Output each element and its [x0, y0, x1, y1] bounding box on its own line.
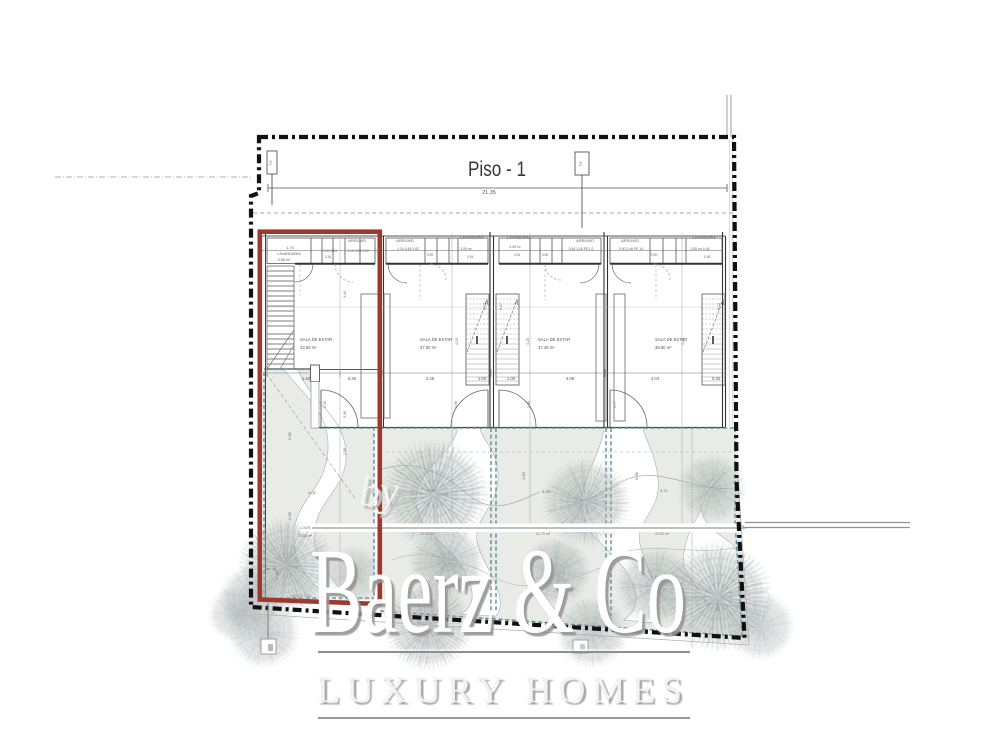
svg-text:0.38: 0.38 — [634, 471, 639, 480]
svg-text:SALA DE ESTAR: SALA DE ESTAR — [300, 337, 332, 342]
svg-text:2.40: 2.40 — [323, 401, 327, 408]
svg-text:1.00: 1.00 — [507, 376, 516, 381]
svg-text:6.12: 6.12 — [717, 303, 721, 310]
svg-text:SALA DE ESTAR: SALA DE ESTAR — [538, 337, 570, 342]
svg-text:1.90: 1.90 — [454, 401, 458, 408]
svg-text:3.71: 3.71 — [660, 488, 669, 493]
svg-text:3.40: 3.40 — [343, 291, 347, 298]
svg-text:1.70: 1.70 — [286, 246, 293, 250]
svg-text:0.90: 0.90 — [542, 253, 549, 257]
svg-text:SALA DE ESTAR: SALA DE ESTAR — [420, 337, 452, 342]
svg-text:37.40 m²: 37.40 m² — [538, 345, 555, 350]
svg-text:3.08: 3.08 — [343, 411, 347, 418]
svg-text:3.05 m²: 3.05 m² — [509, 245, 521, 249]
svg-text:ARRUMO: ARRUMO — [348, 238, 366, 243]
svg-text:3.20 0.94: 3.20 0.94 — [323, 249, 337, 253]
svg-text:Baerz & Co: Baerz & Co — [310, 524, 686, 659]
svg-text:33.90 m²: 33.90 m² — [300, 345, 317, 350]
svg-text:1.58: 1.58 — [521, 471, 526, 480]
svg-text:2.50: 2.50 — [343, 448, 347, 455]
svg-text:4.03: 4.03 — [651, 376, 660, 381]
svg-text:0.90: 0.90 — [651, 253, 658, 257]
svg-text:4.25: 4.25 — [681, 338, 685, 345]
svg-text:by: by — [359, 469, 399, 515]
svg-text:5.30: 5.30 — [348, 376, 357, 381]
svg-text:1.40: 1.40 — [302, 376, 311, 381]
svg-text:P1: P1 — [268, 161, 273, 167]
svg-text:1.48: 1.48 — [704, 255, 711, 259]
svg-text:4.25: 4.25 — [455, 338, 459, 345]
svg-text:0.90: 0.90 — [427, 253, 434, 257]
svg-text:ARRUMO: ARRUMO — [576, 238, 594, 243]
svg-text:LAVANDARIA: LAVANDARIA — [460, 236, 484, 240]
svg-text:1.77: 1.77 — [613, 401, 617, 408]
svg-text:1.00: 1.00 — [478, 376, 487, 381]
svg-text:38.90 m²: 38.90 m² — [655, 345, 672, 350]
svg-text:LAVANDARIA: LAVANDARIA — [277, 252, 301, 256]
svg-text:0.30: 0.30 — [712, 376, 721, 381]
svg-text:6.17: 6.17 — [483, 303, 487, 310]
svg-text:1.90: 1.90 — [527, 401, 531, 408]
svg-text:2.88: 2.88 — [287, 431, 292, 440]
svg-text:Piso - 1: Piso - 1 — [468, 157, 526, 181]
svg-text:37.00 m²: 37.00 m² — [420, 345, 437, 350]
svg-text:0.34: 0.34 — [325, 255, 332, 259]
svg-text:LAVANDARIA: LAVANDARIA — [507, 236, 531, 240]
svg-text:LUXURY HOMES: LUXURY HOMES — [317, 670, 689, 711]
svg-text:6.17: 6.17 — [499, 303, 503, 310]
svg-text:4.08: 4.08 — [566, 376, 575, 381]
svg-text:ARRUMO: ARRUMO — [621, 238, 639, 243]
svg-text:4.25: 4.25 — [526, 338, 530, 345]
svg-text:LAVANDARIA: LAVANDARIA — [692, 236, 716, 240]
svg-text:4.34: 4.34 — [514, 253, 521, 257]
svg-text:21.35: 21.35 — [482, 190, 496, 196]
svg-text:4.28: 4.28 — [426, 376, 435, 381]
svg-text:1.10 0.45 0.82: 1.10 0.45 0.82 — [347, 249, 369, 253]
svg-text:3.55 m²: 3.55 m² — [278, 258, 292, 262]
svg-text:P2: P2 — [578, 162, 583, 168]
svg-text:4.34: 4.34 — [467, 255, 474, 259]
svg-text:4.02: 4.02 — [308, 490, 317, 495]
svg-text:ARRUMO: ARRUMO — [396, 238, 414, 243]
